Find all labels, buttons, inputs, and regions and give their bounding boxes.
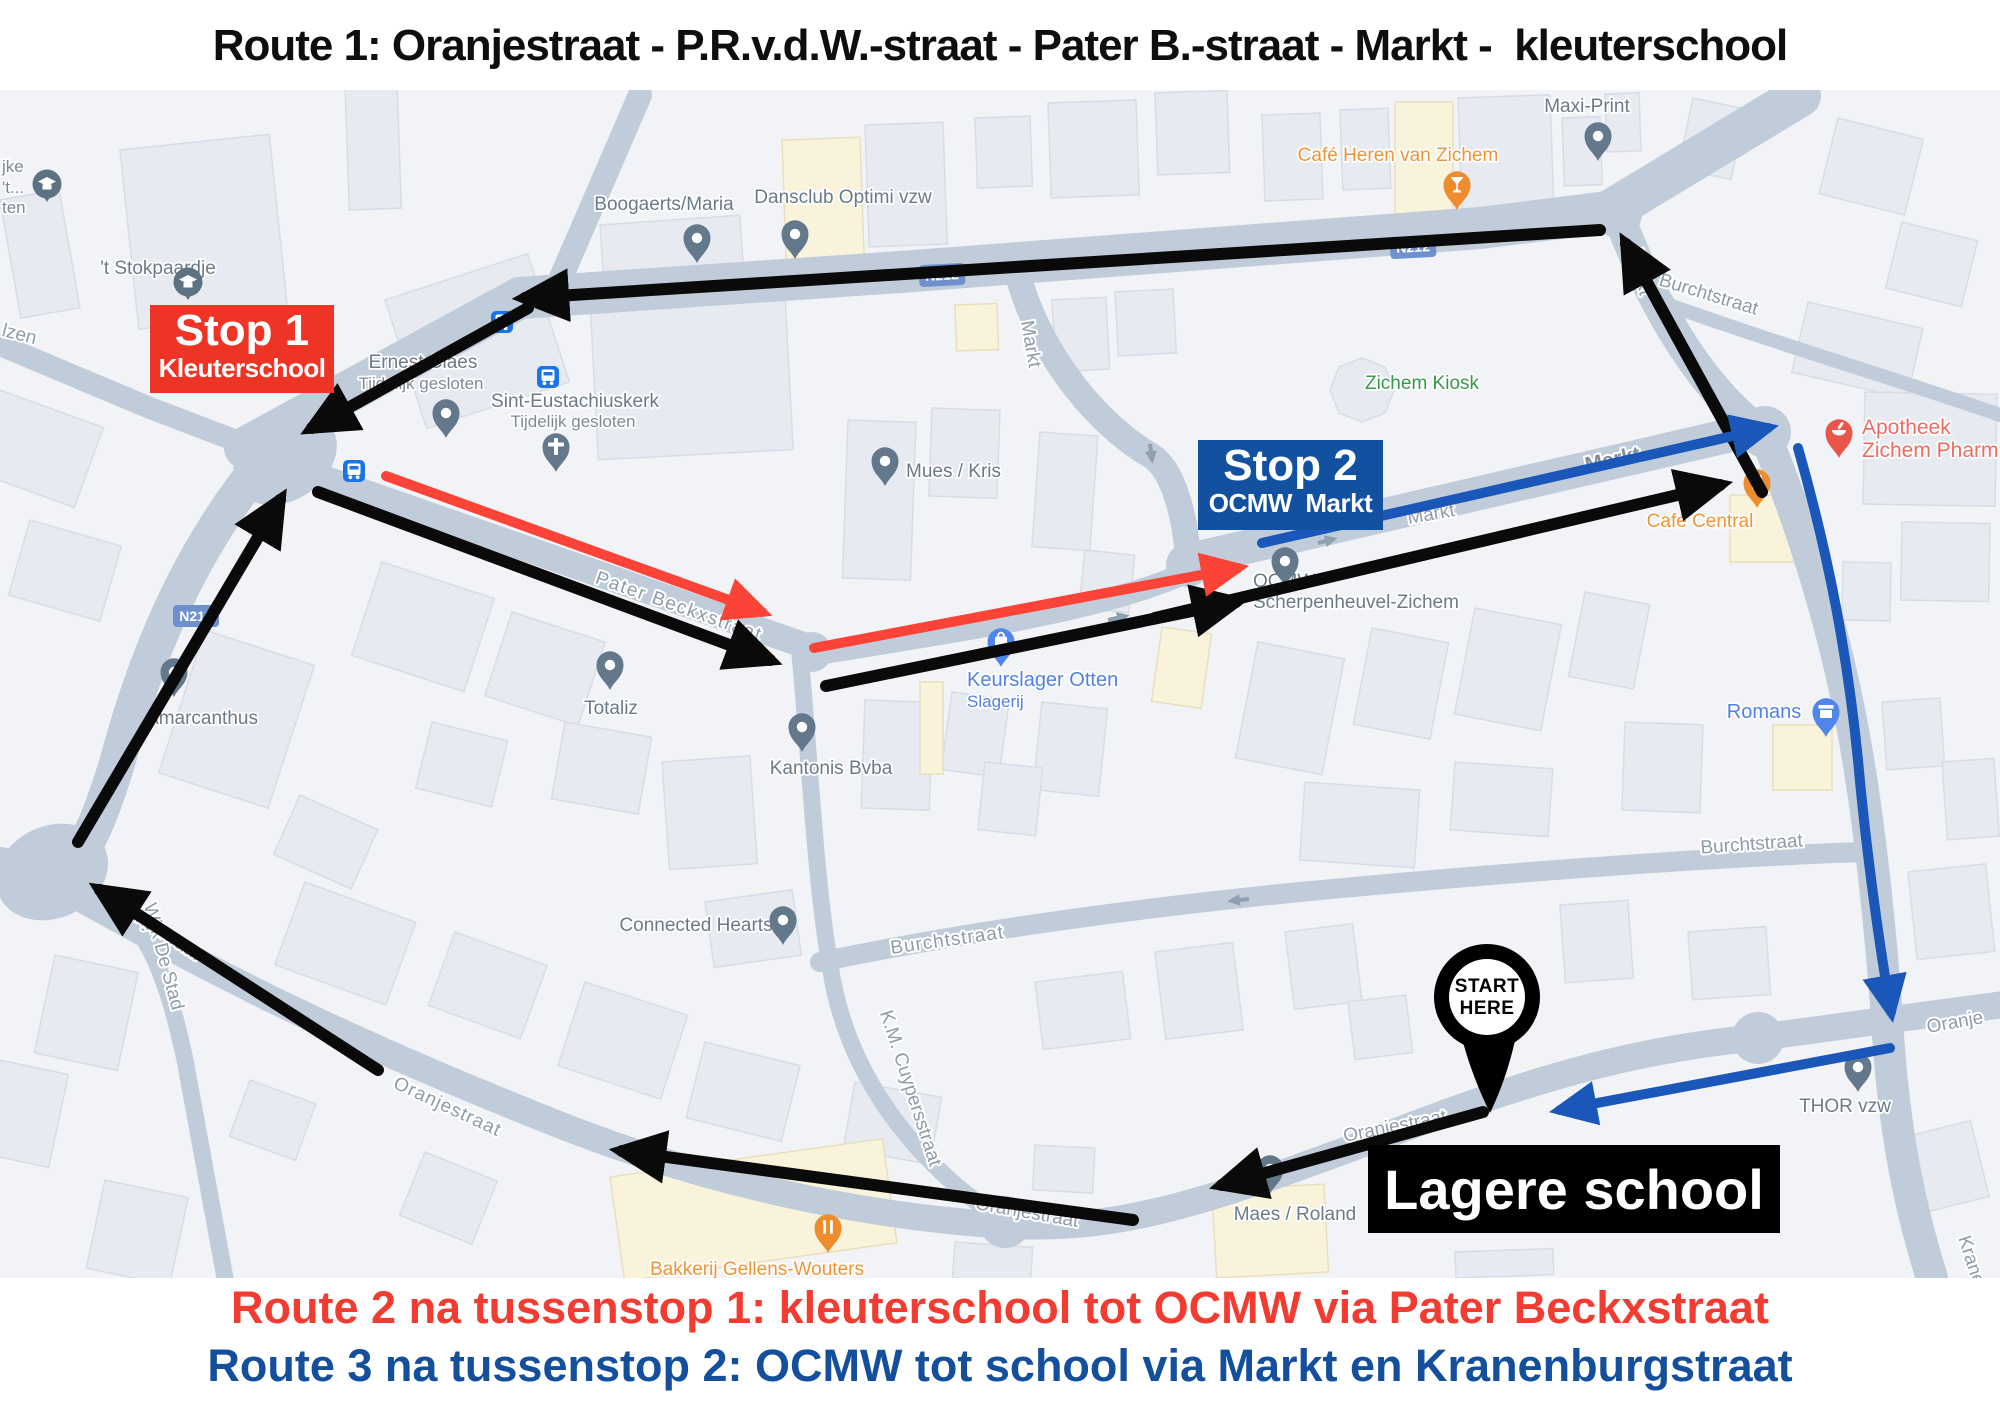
poi-label-keurslager-sub: Slagerij: [967, 692, 1024, 711]
poi-label-kantonis: Kantonis Bvba: [770, 758, 893, 779]
map-canvas[interactable]: Markt Markt Markt Markt Pater Beckxstraa…: [0, 90, 2000, 1278]
poi-label-cafe-heren: Café Heren van Zichem: [1298, 145, 1499, 166]
poi-label-romans: Romans: [1727, 701, 1801, 723]
poi-label-edge-2: 't...: [2, 178, 24, 197]
poi-label-apotheek-1: Apotheek: [1862, 416, 1951, 439]
poi-label-edge-3: ten: [2, 198, 26, 217]
poi-label-sint-eustachiuskerk: Sint-Eustachiuskerk: [491, 391, 659, 412]
poi-label-boogaerts: Boogaerts/Maria: [594, 194, 734, 215]
stop2-subtitle: OCMW Markt: [1198, 489, 1383, 517]
legend-route3: Route 3 na tussenstop 2: OCMW tot school…: [0, 1340, 2000, 1392]
page-title: Route 1: Oranjestraat - P.R.v.d.W.-straa…: [0, 0, 2000, 92]
poi-label-zichem-kiosk: Zichem Kiosk: [1365, 373, 1480, 394]
poi-label-thor: THOR vzw: [1799, 1096, 1891, 1117]
stop2-callout: Stop 2 OCMW Markt: [1198, 440, 1383, 530]
lagere-school-callout: Lagere school: [1368, 1145, 1780, 1233]
page: Route 1: Oranjestraat - P.R.v.d.W.-straa…: [0, 0, 2000, 1414]
map-container: Markt Markt Markt Markt Pater Beckxstraa…: [0, 90, 2000, 1278]
stop1-callout: Stop 1 Kleuterschool: [150, 305, 334, 393]
poi-label-edge-1: jke: [1, 157, 24, 176]
poi-label-mues-kris: Mues / Kris: [906, 461, 1001, 482]
stop2-title: Stop 2: [1198, 440, 1383, 492]
poi-label-sint-eustachiuskerk-status: Tijdelijk gesloten: [510, 412, 635, 431]
stop1-subtitle: Kleuterschool: [150, 354, 334, 382]
poi-label-keurslager: Keurslager Otten: [967, 669, 1118, 691]
poi-label-maes-roland: Maes / Roland: [1234, 1204, 1357, 1225]
oneway-arrow-icon: [1150, 444, 1152, 460]
stop1-title: Stop 1: [150, 305, 334, 357]
start-here-line2: HERE: [1460, 998, 1515, 1019]
legend-route2: Route 2 na tussenstop 1: kleuterschool t…: [0, 1282, 2000, 1334]
bus-stop-icon[interactable]: [537, 366, 559, 388]
start-here-line1: START: [1455, 976, 1519, 997]
oneway-arrow-icon: [1231, 899, 1249, 901]
poi-label-bakkerij: Bakkerij Gellens-Wouters: [650, 1259, 864, 1278]
poi-label-maxi-print: Maxi-Print: [1544, 96, 1630, 117]
poi-label-apotheek-2: Zichem Pharm: [1862, 439, 1999, 462]
poi-label-amarcanthus: Amarcanthus: [146, 708, 258, 729]
poi-label-connected-hearts: Connected Hearts: [619, 915, 772, 936]
poi-label-totaliz: Totaliz: [584, 698, 638, 719]
poi-label-cafe-central: Café Central: [1647, 511, 1754, 532]
bus-stop-icon[interactable]: [343, 460, 365, 482]
poi-label-dansclub: Dansclub Optimi vzw: [754, 187, 932, 208]
poi-label-ocmw-2: Scherpenheuvel-Zichem: [1253, 592, 1459, 613]
